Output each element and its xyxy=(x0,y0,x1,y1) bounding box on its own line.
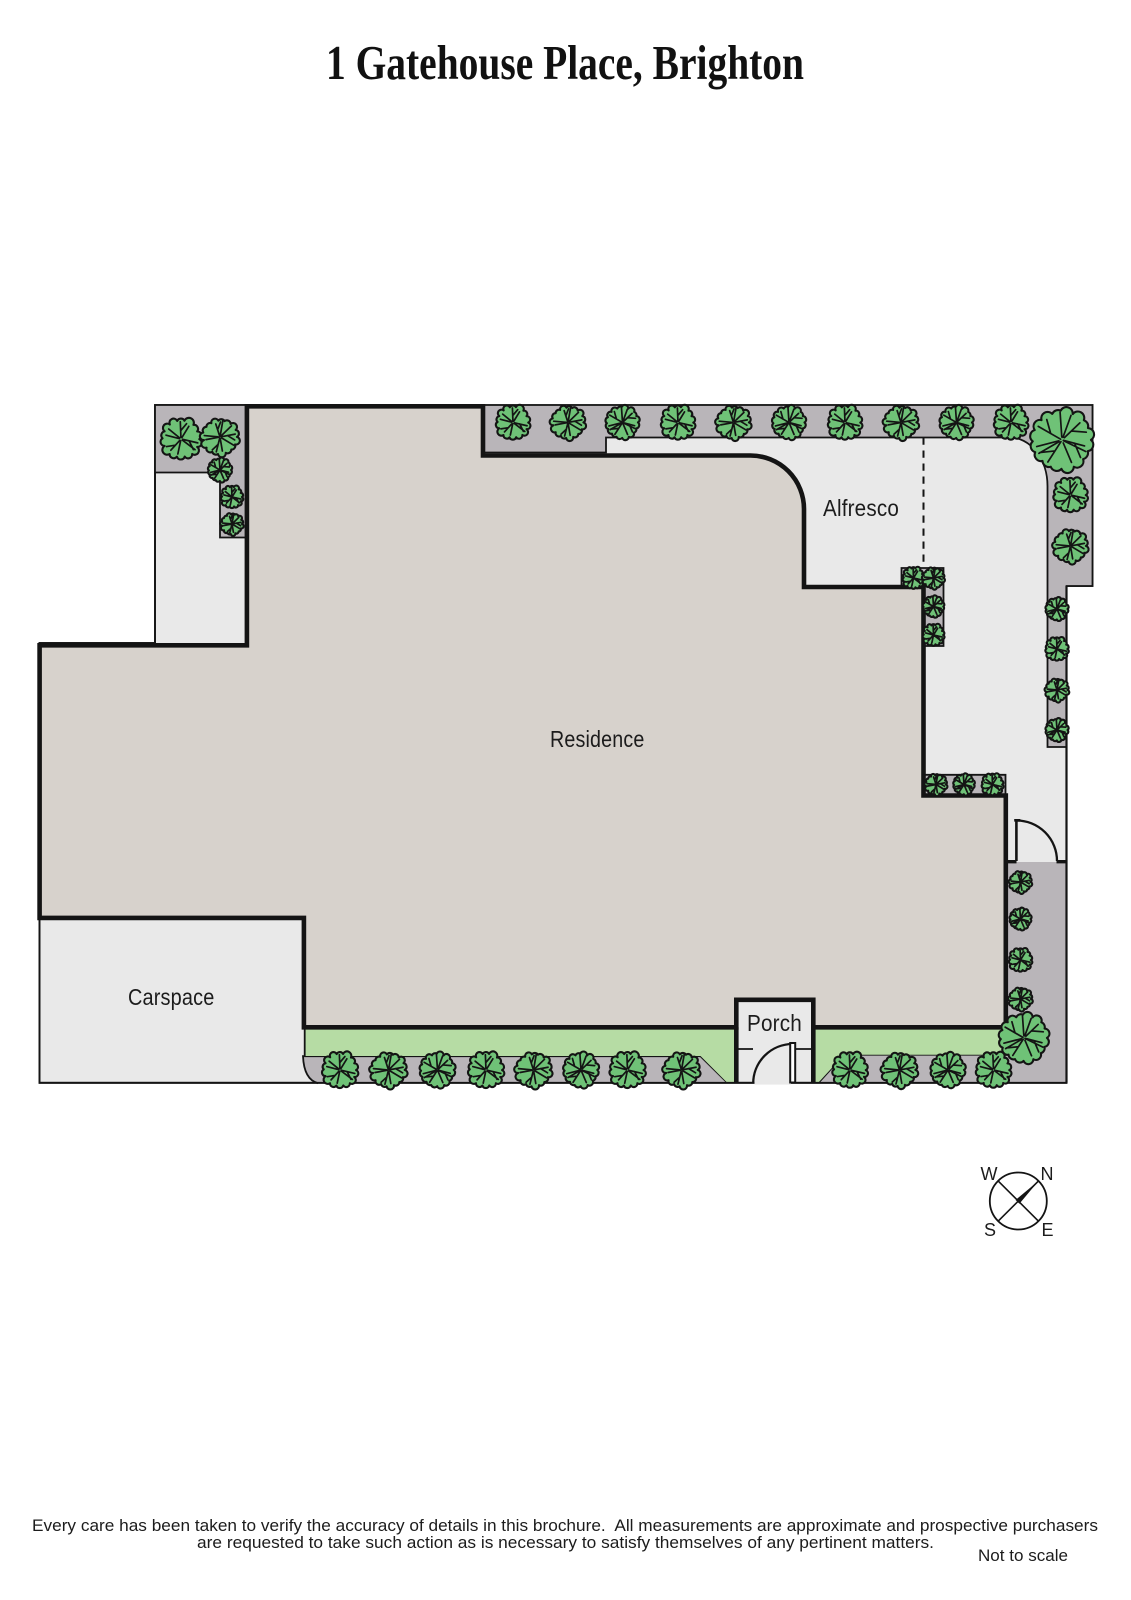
svg-text:Carspace: Carspace xyxy=(128,984,215,1010)
svg-text:Not to scale: Not to scale xyxy=(978,1546,1068,1565)
svg-text:N: N xyxy=(1041,1164,1054,1184)
svg-text:Alfresco: Alfresco xyxy=(823,495,899,521)
svg-text:1 Gatehouse Place, Brighton: 1 Gatehouse Place, Brighton xyxy=(326,35,804,90)
svg-text:S: S xyxy=(984,1220,996,1240)
svg-text:Residence: Residence xyxy=(550,726,645,752)
svg-text:are requested to take such act: are requested to take such action as is … xyxy=(197,1533,934,1552)
svg-text:E: E xyxy=(1041,1220,1053,1240)
svg-text:W: W xyxy=(981,1164,998,1184)
svg-text:Porch: Porch xyxy=(747,1010,802,1036)
